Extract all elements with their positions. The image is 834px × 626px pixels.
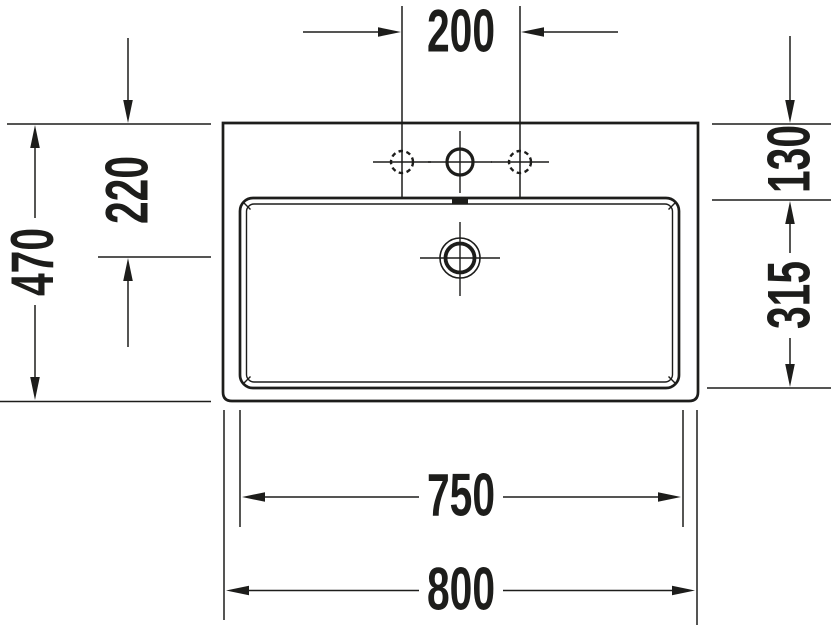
arrowhead-down bbox=[123, 100, 133, 123]
dim-value-315: 315 bbox=[756, 261, 823, 329]
dim-value-750: 750 bbox=[427, 462, 495, 529]
dimension-basin-depth: 315 bbox=[707, 201, 831, 388]
arrowhead-left bbox=[521, 27, 544, 37]
arrowhead-left bbox=[242, 492, 265, 502]
dimension-rear-to-drain: 220 bbox=[94, 38, 211, 347]
arrowhead-up bbox=[123, 258, 133, 281]
faucet-hole-center-icon bbox=[428, 131, 492, 193]
dim-value-200: 200 bbox=[427, 0, 495, 64]
arrowhead-left bbox=[226, 586, 249, 596]
arrowhead-down bbox=[30, 377, 40, 400]
dimension-rear-to-basin: 130 bbox=[712, 36, 831, 200]
drain-icon bbox=[420, 222, 500, 296]
dimension-basin-width: 750 bbox=[240, 410, 683, 528]
dim-value-220: 220 bbox=[94, 156, 161, 224]
arrowhead-down bbox=[785, 364, 795, 387]
arrowhead-right bbox=[672, 586, 695, 596]
arrowhead-up bbox=[30, 125, 40, 148]
washbasin-dimension-drawing: 200 470 220 130 bbox=[0, 0, 834, 626]
arrowhead-right bbox=[658, 492, 681, 502]
dim-value-470: 470 bbox=[0, 228, 66, 296]
dim-value-130: 130 bbox=[756, 125, 823, 193]
dim-value-800: 800 bbox=[427, 556, 495, 623]
arrowhead-down bbox=[785, 100, 795, 123]
arrowhead-right bbox=[378, 27, 401, 37]
technical-drawing-canvas: 200 470 220 130 bbox=[0, 0, 834, 626]
arrowhead-up bbox=[785, 201, 795, 224]
overflow-mark bbox=[452, 199, 468, 204]
